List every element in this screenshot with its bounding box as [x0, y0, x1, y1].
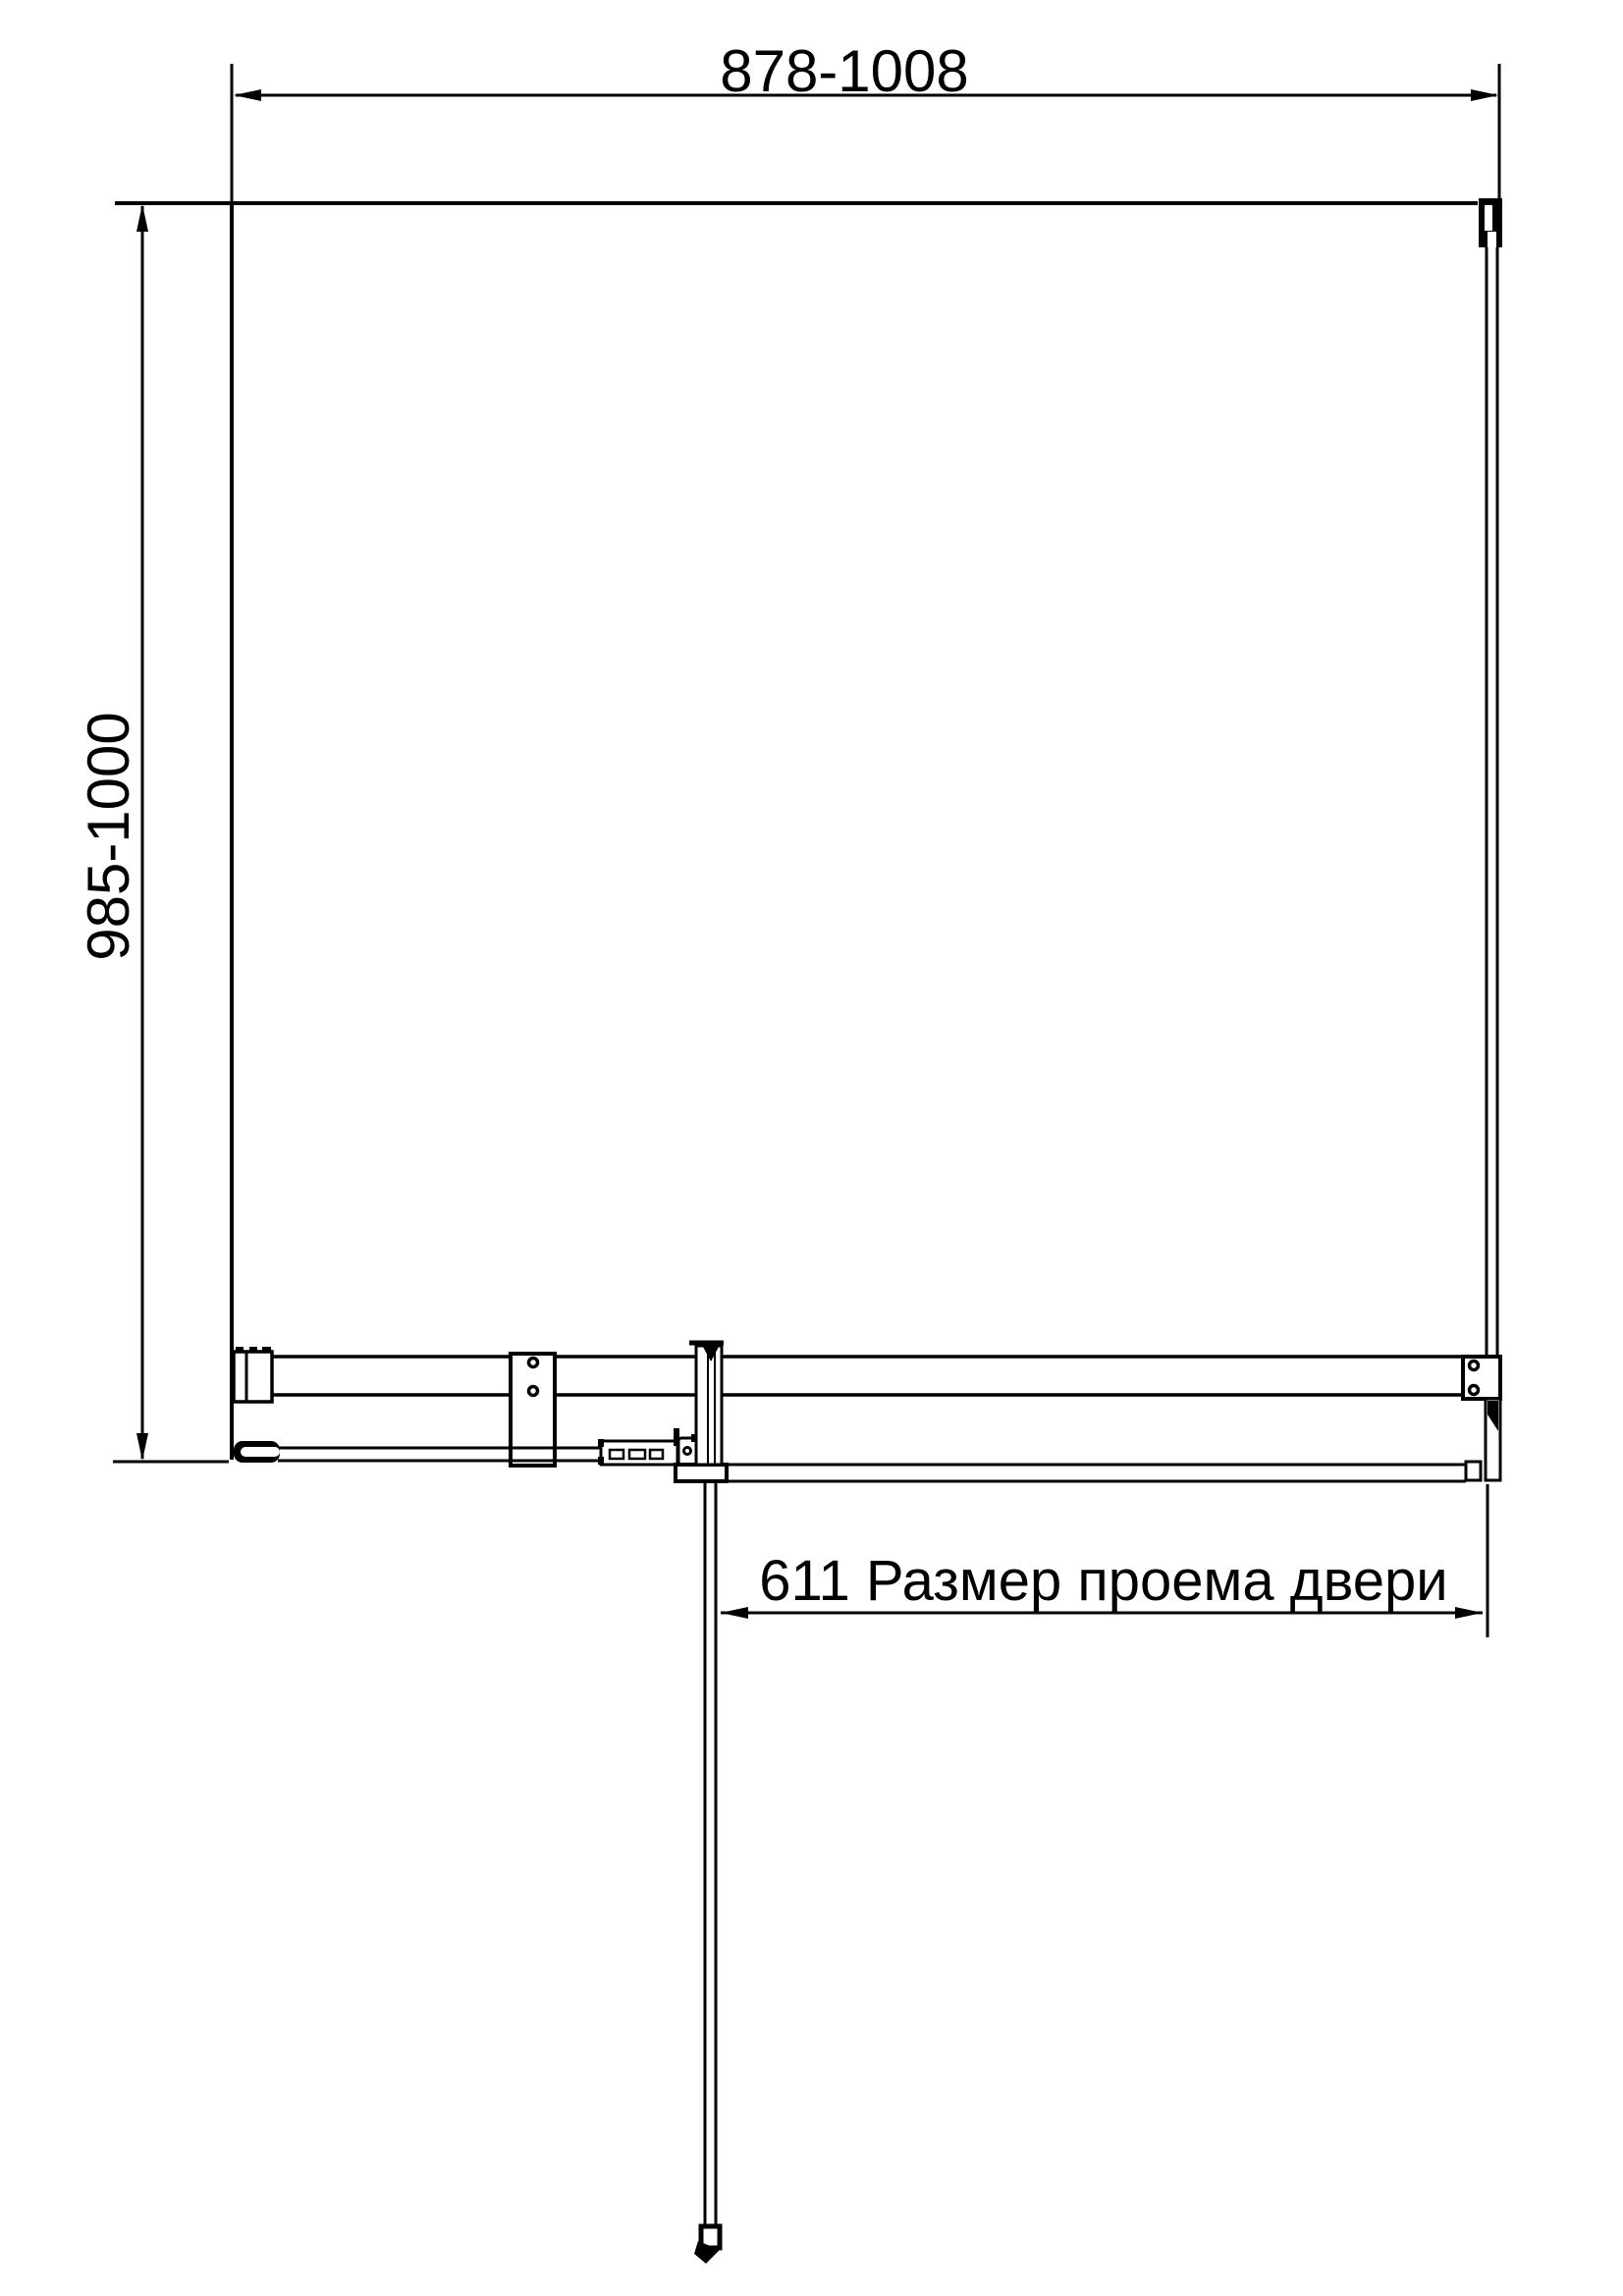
bottom-guide-bracket	[676, 1465, 727, 1481]
roller-carriage	[598, 1439, 677, 1465]
roller	[629, 1450, 645, 1459]
channel-end-tick	[598, 1439, 604, 1447]
depth-dimension-label: 985-1000	[76, 712, 141, 961]
width-dimension-label: 878-1008	[720, 38, 969, 104]
clamp-slot	[1488, 232, 1496, 247]
top-width-dimension: 878-1008	[232, 38, 1499, 201]
door-open-position-line	[694, 1481, 720, 2264]
arrowhead-right-icon	[1455, 1607, 1483, 1619]
screw-hole	[1470, 1386, 1479, 1395]
fixed-panel-rail	[727, 1462, 1481, 1481]
shower-enclosure-plan-drawing: 878-1008 985-1000	[0, 0, 1623, 2296]
screw-hole	[1470, 1362, 1479, 1370]
profile-tooth	[262, 1347, 271, 1353]
arrowhead-left-icon	[721, 1607, 748, 1619]
right-mount-plate	[1463, 1357, 1500, 1399]
door-opening-dimension: 611 Размер проема двери	[721, 1484, 1488, 1637]
arrowhead-bottom-icon	[136, 1433, 148, 1461]
technical-drawing-page: 878-1008 985-1000	[0, 0, 1623, 2296]
rail-end-cap-inner	[241, 1447, 280, 1457]
side-glass-panel	[1479, 198, 1502, 1359]
right-corner-profile	[1486, 1399, 1500, 1480]
channel-end-tick	[598, 1457, 604, 1465]
roller	[610, 1450, 623, 1459]
screw-hole	[529, 1359, 538, 1367]
arrowhead-left-icon	[234, 89, 261, 101]
enclosure-outline	[115, 203, 1478, 1460]
arrowhead-top-icon	[136, 204, 148, 232]
door-opening-dimension-label: 611 Размер проема двери	[759, 1549, 1447, 1613]
roller	[650, 1450, 663, 1459]
left-depth-dimension: 985-1000	[76, 204, 229, 1462]
clamp-notch	[1485, 205, 1492, 231]
bracket-body	[676, 1465, 727, 1481]
screw-hole	[529, 1387, 538, 1396]
latch-block	[1488, 1401, 1498, 1415]
profile-tooth	[236, 1347, 243, 1353]
hinge-hole	[684, 1448, 691, 1455]
profile-body	[234, 1352, 272, 1402]
rail-end-cap	[1466, 1462, 1481, 1480]
top-track-rail	[272, 1357, 1463, 1395]
arrowhead-right-icon	[1471, 89, 1498, 101]
profile-tooth	[249, 1347, 257, 1353]
left-wall-profile	[234, 1347, 272, 1402]
